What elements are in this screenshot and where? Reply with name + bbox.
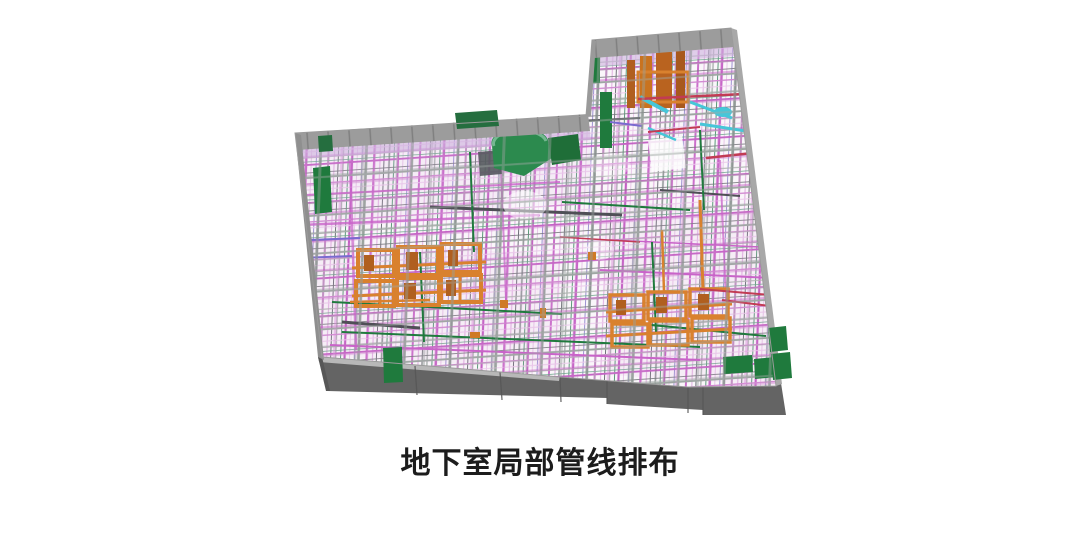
page: 地下室局部管线排布 <box>0 0 1080 548</box>
bim-model-3d-view <box>0 0 1080 430</box>
figure-caption: 地下室局部管线排布 <box>0 438 1080 482</box>
model-interior-pipework <box>280 10 800 400</box>
